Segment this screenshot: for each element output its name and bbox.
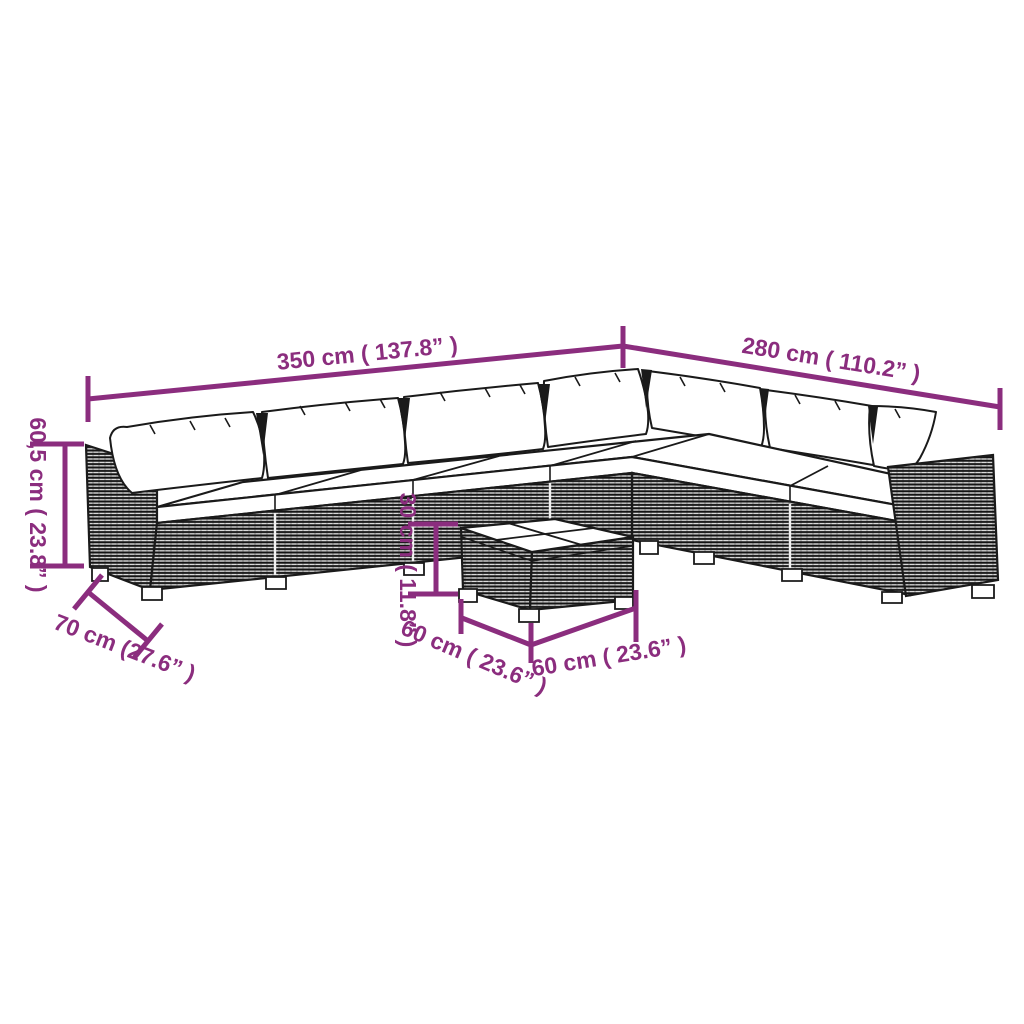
pillow-4 (544, 369, 648, 447)
pillow-7 (869, 406, 936, 471)
lounge-set-diagram-svg: 350 cm ( 137.8” ) 280 cm ( 110.2” ) 60,5… (0, 0, 1024, 1024)
pillow-1 (110, 412, 264, 493)
sofa-right-arm (888, 455, 998, 596)
label-sofa-height: 60,5 cm ( 23.8” ) (25, 417, 51, 592)
dim-line-table-depth (531, 608, 636, 645)
pillow-3 (404, 383, 545, 463)
label-table-width: 60 cm ( 23.6” ) (397, 614, 551, 699)
coffee-table (459, 519, 633, 622)
label-length-left: 350 cm ( 137.8” ) (276, 331, 459, 375)
dimension-diagram: 350 cm ( 137.8” ) 280 cm ( 110.2” ) 60,5… (0, 0, 1024, 1024)
pillow-2 (262, 398, 405, 478)
